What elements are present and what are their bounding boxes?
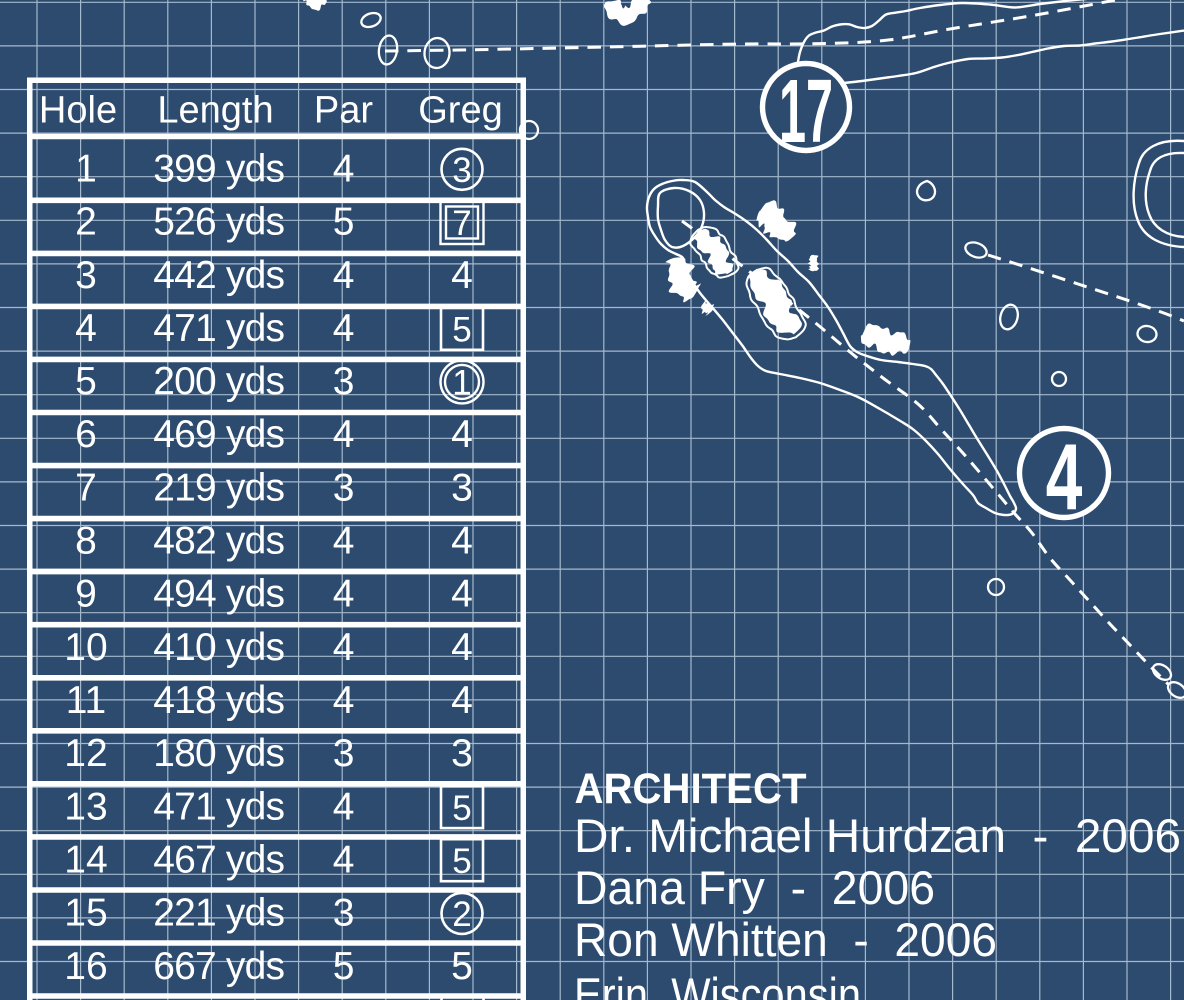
svg-text:469 yds: 469 yds [153,413,284,456]
svg-text:3: 3 [333,466,355,509]
svg-text:399 yds: 399 yds [153,148,284,191]
svg-text:4: 4 [451,413,473,456]
svg-text:4: 4 [451,573,473,616]
svg-text:4: 4 [333,520,355,563]
svg-text:2: 2 [75,201,97,244]
svg-text:6: 6 [75,413,97,456]
svg-text:Greg: Greg [418,90,502,132]
svg-text:4: 4 [333,148,355,191]
svg-text:3: 3 [333,360,355,403]
svg-text:Dr. Michael Hurdzan - 2006: Dr. Michael Hurdzan - 2006 [574,809,1181,862]
svg-text:5: 5 [451,945,473,988]
svg-text:Par: Par [314,90,373,132]
svg-text:4: 4 [451,254,473,297]
svg-text:442 yds: 442 yds [153,254,284,297]
svg-text:5: 5 [333,945,355,988]
svg-text:410 yds: 410 yds [153,626,284,669]
svg-text:3: 3 [333,732,355,775]
svg-text:3: 3 [451,732,473,775]
svg-text:467 yds: 467 yds [153,839,284,882]
svg-text:13: 13 [64,785,107,828]
svg-text:8: 8 [75,520,97,563]
svg-text:9: 9 [75,573,97,616]
svg-text:221 yds: 221 yds [153,892,284,935]
svg-text:Dana Fry - 2006: Dana Fry - 2006 [574,861,935,914]
svg-text:4: 4 [333,839,355,882]
svg-text:482 yds: 482 yds [153,520,284,563]
svg-text:3: 3 [75,254,97,297]
svg-text:Ron Whitten - 2006: Ron Whitten - 2006 [574,913,997,966]
svg-text:3: 3 [333,892,355,935]
svg-text:200 yds: 200 yds [153,360,284,403]
svg-text:4: 4 [451,520,473,563]
svg-text:7: 7 [75,466,97,509]
svg-text:1: 1 [75,148,97,191]
svg-text:4: 4 [333,573,355,616]
svg-text:4: 4 [333,254,355,297]
svg-text:180 yds: 180 yds [153,732,284,775]
svg-text:14: 14 [64,839,107,882]
svg-text:ARCHITECT: ARCHITECT [575,765,807,813]
svg-text:Length: Length [157,90,273,132]
svg-text:4: 4 [333,413,355,456]
svg-text:4: 4 [75,307,97,350]
svg-text:471 yds: 471 yds [153,307,284,350]
svg-text:4: 4 [451,679,473,722]
svg-text:5: 5 [452,311,471,350]
svg-text:17: 17 [779,62,833,162]
svg-text:4: 4 [1046,426,1083,530]
svg-text:12: 12 [64,732,107,775]
svg-text:5: 5 [452,789,471,828]
svg-text:5: 5 [333,201,355,244]
svg-text:3: 3 [452,151,471,190]
svg-text:418 yds: 418 yds [153,679,284,722]
svg-text:2: 2 [452,895,471,934]
svg-text:Hole: Hole [39,90,117,132]
svg-text:4: 4 [451,626,473,669]
svg-text:4: 4 [333,307,355,350]
svg-text:667 yds: 667 yds [153,945,284,988]
svg-text:3: 3 [451,466,473,509]
svg-text:Erin, Wisconsin: Erin, Wisconsin [574,968,861,1000]
svg-text:5: 5 [75,360,97,403]
svg-text:4: 4 [333,785,355,828]
svg-text:15: 15 [64,892,107,935]
svg-text:471 yds: 471 yds [153,785,284,828]
svg-text:4: 4 [333,626,355,669]
svg-text:526 yds: 526 yds [153,201,284,244]
svg-text:494 yds: 494 yds [153,573,284,616]
svg-text:16: 16 [64,945,107,988]
svg-text:5: 5 [452,842,471,881]
svg-text:4: 4 [333,679,355,722]
svg-text:10: 10 [64,626,107,669]
svg-text:219 yds: 219 yds [153,466,284,509]
svg-text:11: 11 [66,679,107,722]
